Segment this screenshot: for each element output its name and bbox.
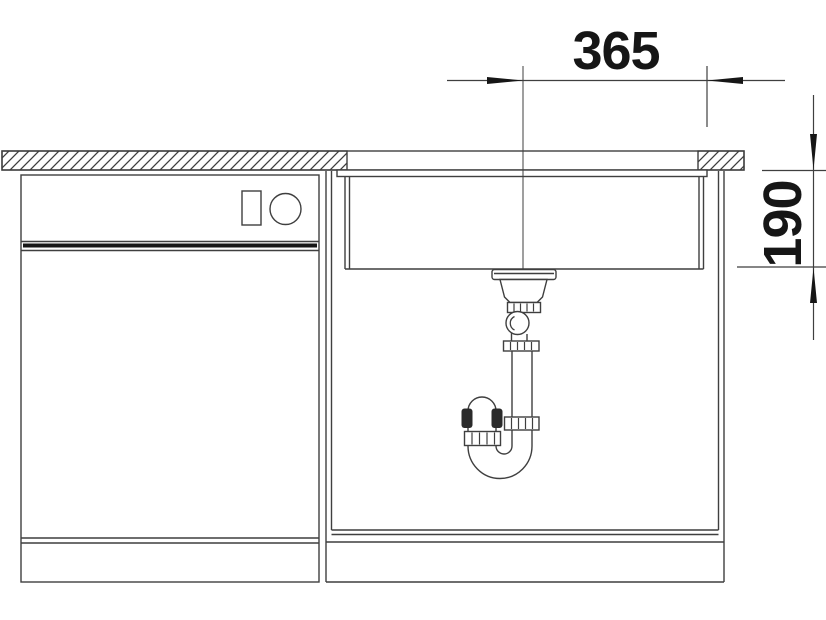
dimension-width-label: 365 xyxy=(561,28,671,74)
countertop-hatch-left xyxy=(2,151,347,170)
ball-elbow xyxy=(506,312,529,335)
dim-arrow-left-icon xyxy=(707,77,743,84)
trap-nut-3 xyxy=(505,417,540,430)
left-cabinet xyxy=(21,175,319,582)
drain-trap-assembly xyxy=(462,270,557,479)
door-top-thick-line xyxy=(23,244,317,248)
dim-arrow-up-icon xyxy=(810,268,817,304)
dim-arrow-right-icon xyxy=(487,77,523,84)
u-bend-outer-curve xyxy=(468,446,532,479)
trap-nut-1 xyxy=(508,303,541,313)
dimension-depth-label: 190 xyxy=(760,163,806,285)
sink-rim-flange xyxy=(337,170,707,177)
countertop xyxy=(2,151,744,170)
u-bend-cap xyxy=(468,397,496,411)
technical-drawing-canvas: 365 190 xyxy=(0,0,826,620)
countertop-hatch-right xyxy=(698,151,744,170)
strainer-flange xyxy=(492,270,556,280)
sink-section-drawing xyxy=(0,0,826,620)
strainer-cup xyxy=(500,280,547,303)
left-cabinet-outline xyxy=(21,175,319,582)
sink-cabinet xyxy=(326,171,724,582)
u-bend-inner-curve xyxy=(496,446,512,454)
cabinet-carcass-bottom xyxy=(332,530,719,535)
dim-arrow-down-icon xyxy=(810,134,817,170)
trap-nut-2 xyxy=(504,341,540,351)
bowl-right-wall xyxy=(699,177,704,270)
sink-bowl xyxy=(337,170,707,269)
u-bend-ear-left xyxy=(462,409,473,429)
tail-pipe xyxy=(512,351,532,446)
bowl-left-wall xyxy=(345,177,350,270)
u-bend-ear-right xyxy=(492,409,503,429)
